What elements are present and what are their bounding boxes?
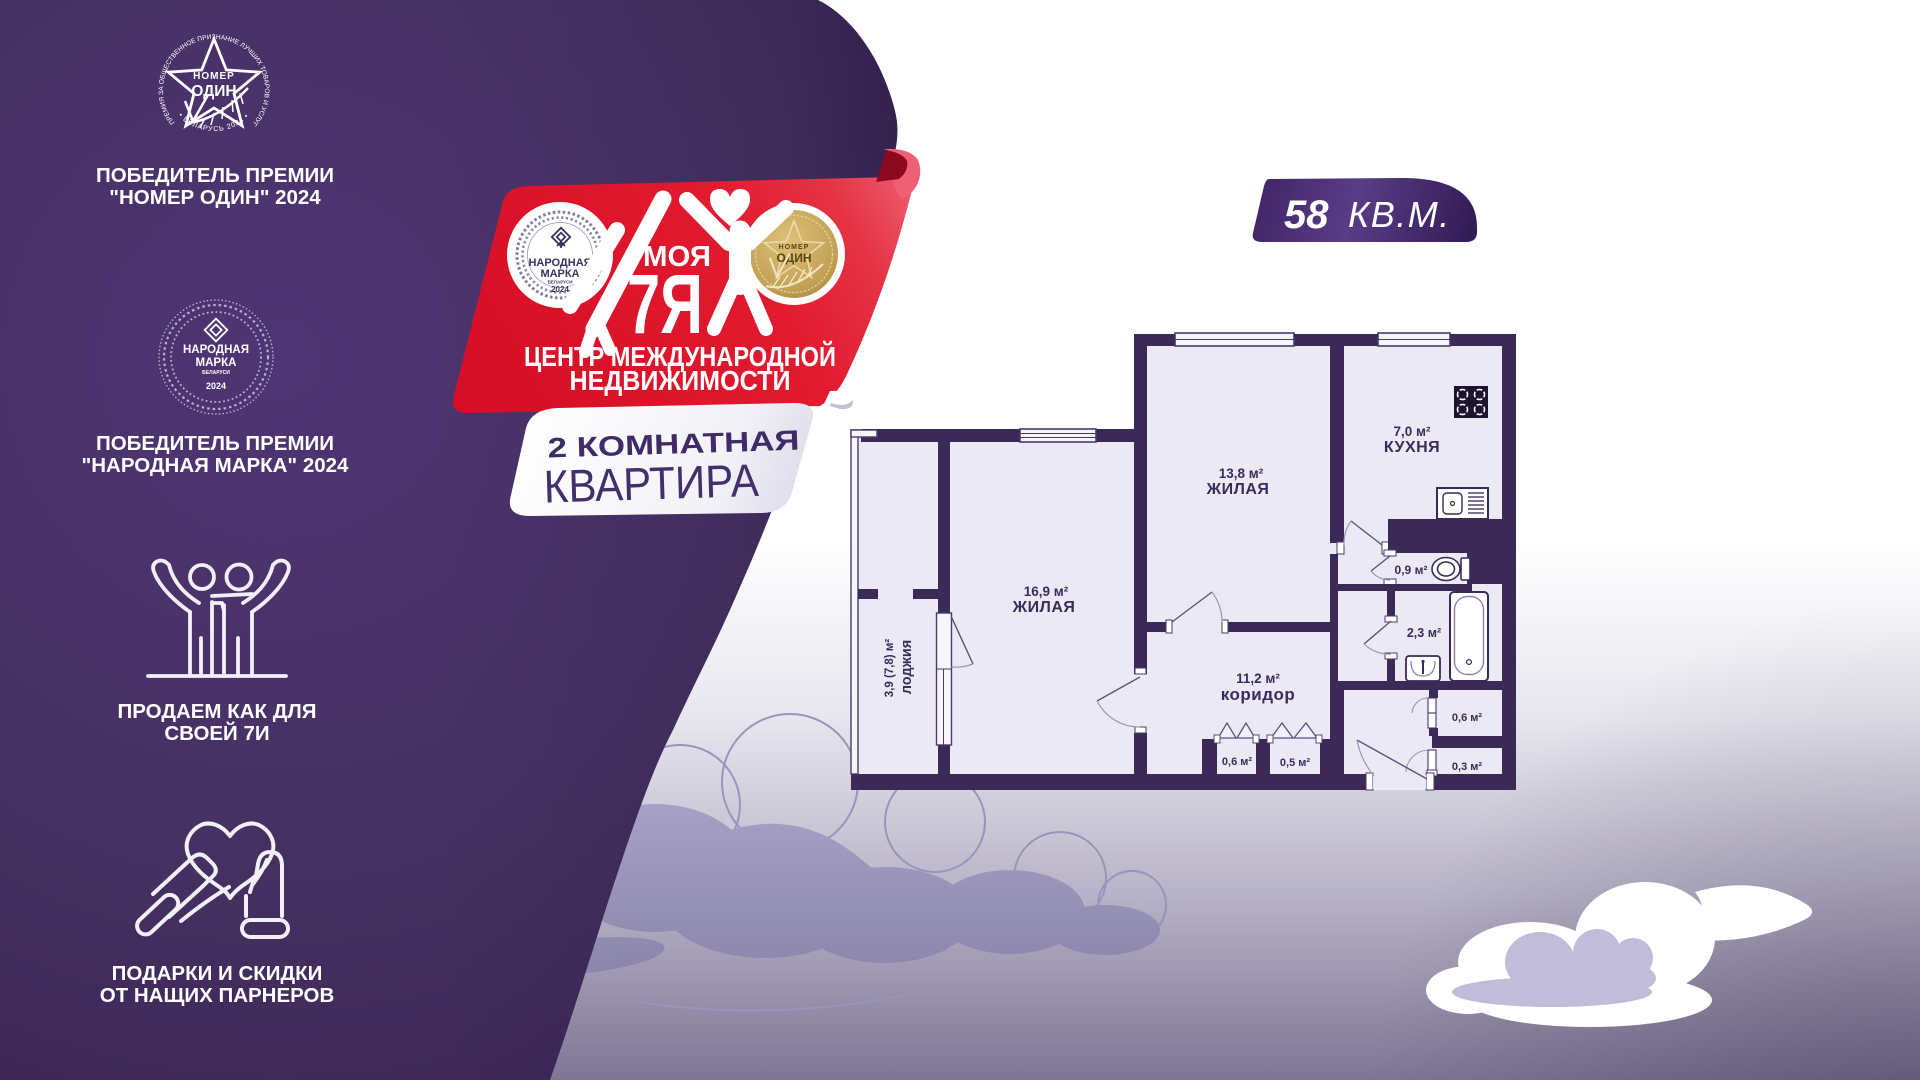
svg-text:58: 58 [1284,193,1329,237]
svg-text:13,8 м²: 13,8 м² [1219,466,1264,481]
svg-text:2,3 м²: 2,3 м² [1407,626,1441,640]
svg-text:ЖИЛАЯ: ЖИЛАЯ [1206,481,1270,498]
svg-text:0,3 м²: 0,3 м² [1452,761,1482,773]
svg-text:7,0 м²: 7,0 м² [1394,424,1432,439]
svg-text:КВАРТИРА: КВАРТИРА [543,454,760,513]
svg-text:11,2 м²: 11,2 м² [1236,671,1280,686]
svg-text:КУХНЯ: КУХНЯ [1384,439,1440,456]
svg-text:ОТ НАЩИХ ПАРНЕРОВ: ОТ НАЩИХ ПАРНЕРОВ [100,984,335,1007]
svg-text:лоджия: лоджия [899,640,915,695]
svg-text:ПОБЕДИТЕЛЬ ПРЕМИИ: ПОБЕДИТЕЛЬ ПРЕМИИ [96,164,334,187]
svg-text:2024: 2024 [551,285,569,294]
svg-text:НОМЕР: НОМЕР [193,71,235,82]
svg-text:КВ.М.: КВ.М. [1348,194,1451,235]
svg-text:МАРКА: МАРКА [540,268,579,280]
svg-text:коридор: коридор [1221,685,1296,704]
svg-text:"НАРОДНАЯ МАРКА" 2024: "НАРОДНАЯ МАРКА" 2024 [82,454,350,477]
svg-text:0,5 м²: 0,5 м² [1280,757,1310,769]
svg-text:НОМЕР: НОМЕР [779,244,810,251]
svg-text:0,6 м²: 0,6 м² [1452,712,1482,724]
svg-text:БЕЛАРУСИ: БЕЛАРУСИ [548,280,573,285]
svg-text:ПОДАРКИ И СКИДКИ: ПОДАРКИ И СКИДКИ [112,962,323,985]
svg-text:ПРОДАЕМ КАК ДЛЯ: ПРОДАЕМ КАК ДЛЯ [118,700,317,723]
svg-text:"НОМЕР ОДИН" 2024: "НОМЕР ОДИН" 2024 [109,186,321,209]
svg-text:БЕЛАРУСИ: БЕЛАРУСИ [202,370,230,376]
svg-text:НЕДВИЖИМОСТИ: НЕДВИЖИМОСТИ [570,365,791,396]
svg-text:0,9 м²: 0,9 м² [1395,563,1428,577]
svg-text:СВОЕЙ 7И: СВОЕЙ 7И [164,721,269,745]
svg-text:ЖИЛАЯ: ЖИЛАЯ [1012,599,1076,616]
svg-text:3,9 (7,8) м²: 3,9 (7,8) м² [884,639,896,698]
svg-text:0,6 м²: 0,6 м² [1222,756,1252,768]
svg-text:ОДИН: ОДИН [776,251,811,265]
svg-text:2024: 2024 [206,381,226,391]
svg-text:7Я: 7Я [627,257,703,351]
svg-text:ОДИН: ОДИН [191,83,236,100]
svg-text:МАРКА: МАРКА [196,357,237,369]
svg-text:ПОБЕДИТЕЛЬ ПРЕМИИ: ПОБЕДИТЕЛЬ ПРЕМИИ [96,432,334,455]
svg-text:16,9 м²: 16,9 м² [1024,584,1069,599]
svg-text:НАРОДНАЯ: НАРОДНАЯ [183,344,249,356]
